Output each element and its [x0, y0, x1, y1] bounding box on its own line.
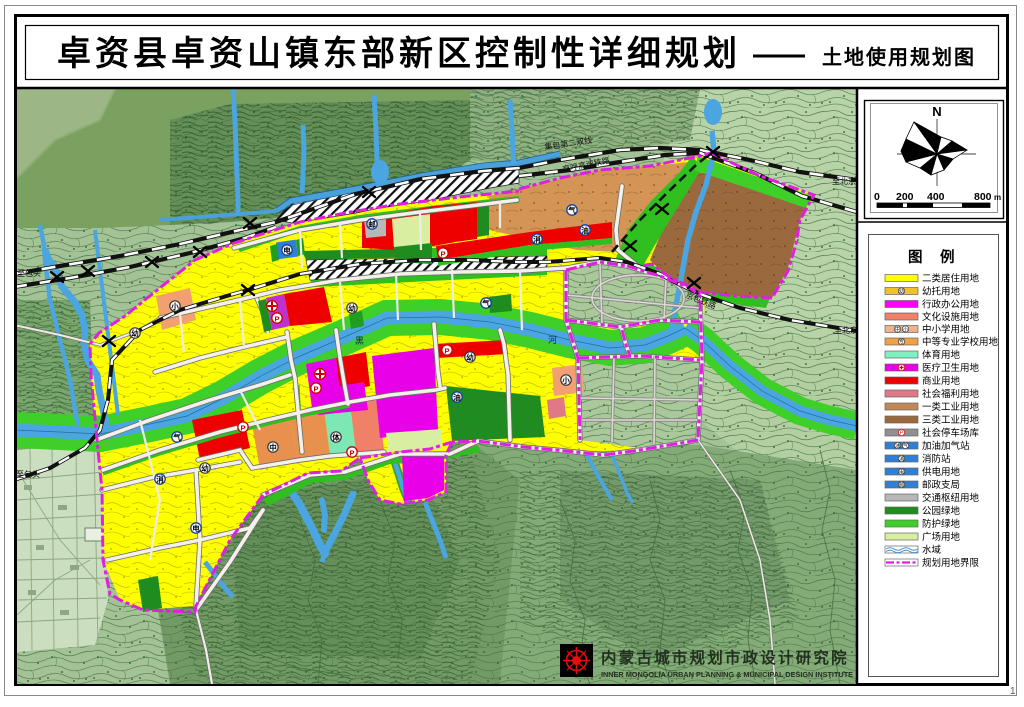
svg-text:中: 中: [895, 326, 900, 333]
svg-text:水域: 水域: [922, 544, 942, 556]
svg-text:专: 专: [899, 339, 904, 346]
svg-text:小: 小: [171, 301, 179, 311]
svg-text:防护绿地: 防护绿地: [922, 518, 961, 530]
svg-text:油: 油: [895, 443, 900, 450]
svg-text:消: 消: [156, 474, 164, 484]
svg-text:1: 1: [1010, 686, 1016, 697]
svg-text:中小学用地: 中小学用地: [922, 323, 970, 335]
svg-text:公园绿地: 公园绿地: [922, 505, 961, 517]
svg-text:幼托用地: 幼托用地: [922, 285, 961, 297]
svg-text:邮: 邮: [368, 219, 376, 229]
svg-text:小: 小: [903, 326, 908, 333]
svg-text:油: 油: [453, 392, 461, 402]
svg-text:至包头: 至包头: [16, 469, 40, 479]
svg-text:文化设施用地: 文化设施用地: [922, 311, 980, 323]
svg-text:气: 气: [567, 205, 576, 215]
svg-text:INNER MONGOLIA URBAN PLANNING: INNER MONGOLIA URBAN PLANNING & MUNICIPA…: [601, 670, 853, 679]
svg-text:社会福利用地: 社会福利用地: [922, 388, 980, 400]
svg-text:二类居住用地: 二类居住用地: [922, 272, 980, 284]
svg-text:规划用地界限: 规划用地界限: [922, 557, 980, 569]
svg-text:P: P: [440, 250, 445, 259]
svg-text:幼: 幼: [201, 463, 209, 473]
svg-text:800: 800: [974, 191, 992, 203]
svg-text:中: 中: [269, 442, 277, 452]
svg-text:消: 消: [533, 234, 541, 244]
svg-text:至北京: 至北京: [832, 176, 856, 186]
svg-text:P: P: [349, 449, 354, 458]
svg-text:例: 例: [940, 248, 955, 266]
svg-text:黑: 黑: [355, 336, 364, 346]
svg-text:加油加气站: 加油加气站: [922, 440, 970, 452]
svg-text:消防站: 消防站: [922, 453, 951, 465]
svg-text:0: 0: [874, 191, 880, 203]
svg-text:医疗卫生用地: 医疗卫生用地: [922, 362, 980, 374]
svg-text:小: 小: [562, 375, 570, 385]
svg-text:400: 400: [927, 191, 945, 203]
svg-text:土地使用规划图: 土地使用规划图: [822, 45, 974, 69]
svg-text:消: 消: [899, 456, 904, 463]
svg-text:邮政支局: 邮政支局: [922, 479, 960, 491]
svg-text:幼: 幼: [131, 328, 139, 338]
svg-text:200: 200: [896, 191, 914, 203]
svg-text:体: 体: [332, 432, 340, 442]
svg-text:三类工业用地: 三类工业用地: [922, 414, 980, 426]
svg-text:电: 电: [283, 245, 291, 255]
svg-text:m: m: [994, 193, 1001, 202]
svg-text:电: 电: [899, 469, 904, 476]
svg-text:气: 气: [903, 443, 908, 450]
svg-text:P: P: [240, 424, 245, 433]
svg-text:至包头: 至包头: [17, 268, 41, 278]
svg-text:商业用地: 商业用地: [922, 375, 961, 387]
svg-text:N: N: [932, 104, 941, 119]
svg-text:幼: 幼: [466, 352, 474, 362]
svg-text:P: P: [313, 385, 318, 394]
svg-text:P: P: [444, 347, 449, 356]
svg-text:河: 河: [548, 334, 557, 345]
svg-text:广场用地: 广场用地: [922, 531, 961, 543]
svg-text:气: 气: [481, 298, 490, 308]
svg-text:至北京: 至北京: [834, 325, 858, 335]
svg-text:体育用地: 体育用地: [922, 349, 961, 361]
svg-text:电: 电: [192, 523, 200, 533]
svg-text:内蒙古城市规划市政设计研究院: 内蒙古城市规划市政设计研究院: [601, 648, 849, 667]
svg-text:中等专业学校用地: 中等专业学校用地: [922, 336, 999, 348]
svg-text:P: P: [274, 315, 279, 324]
svg-text:邮: 邮: [899, 482, 904, 489]
svg-text:油: 油: [581, 225, 589, 235]
svg-text:供电用地: 供电用地: [922, 466, 961, 478]
svg-text:一类工业用地: 一类工业用地: [922, 401, 980, 413]
svg-text:图: 图: [908, 249, 923, 266]
svg-text:幼: 幼: [899, 288, 904, 295]
svg-text:交通枢纽用地: 交通枢纽用地: [922, 492, 980, 504]
svg-text:幼: 幼: [348, 303, 356, 313]
svg-text:气: 气: [172, 432, 181, 442]
svg-text:行政办公用地: 行政办公用地: [922, 298, 980, 310]
svg-text:社会停车场库: 社会停车场库: [922, 427, 980, 439]
